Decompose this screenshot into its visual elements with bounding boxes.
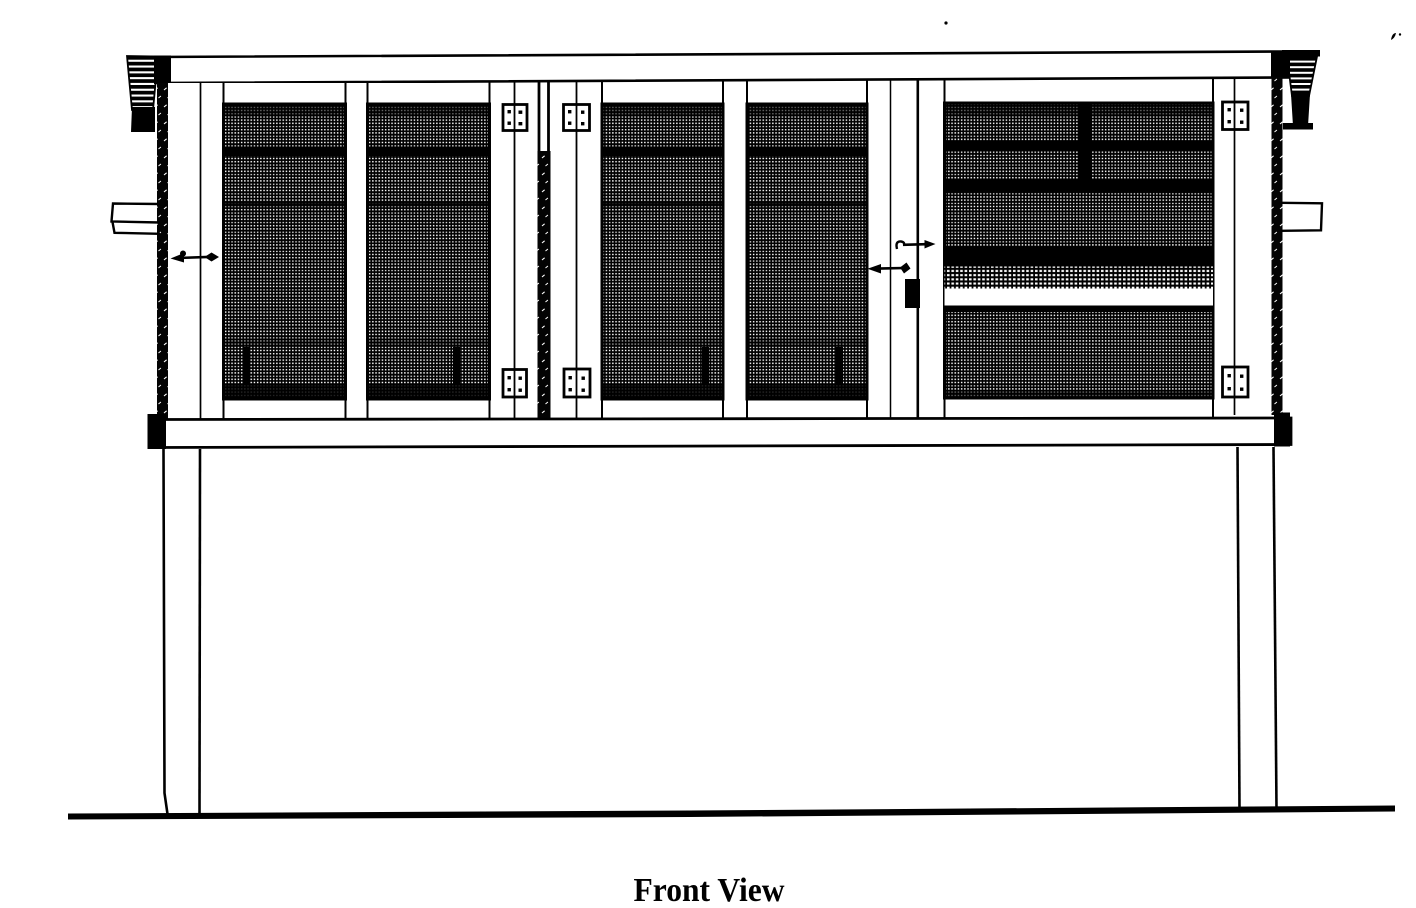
svg-text:Front View: Front View xyxy=(634,872,785,908)
